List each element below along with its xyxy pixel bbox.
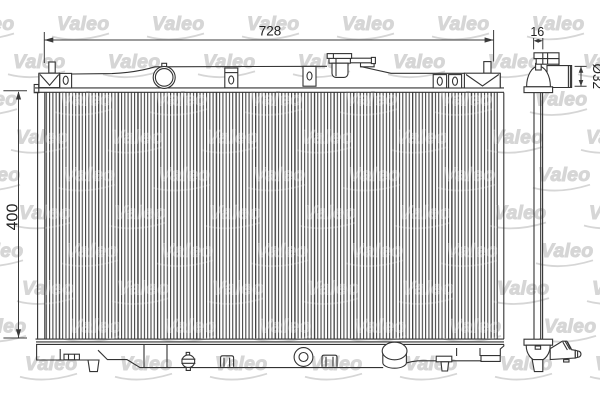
svg-text:728: 728 xyxy=(259,24,282,39)
svg-text:16: 16 xyxy=(530,25,544,39)
svg-text:Ø32: Ø32 xyxy=(590,64,600,90)
svg-text:400: 400 xyxy=(4,204,21,231)
